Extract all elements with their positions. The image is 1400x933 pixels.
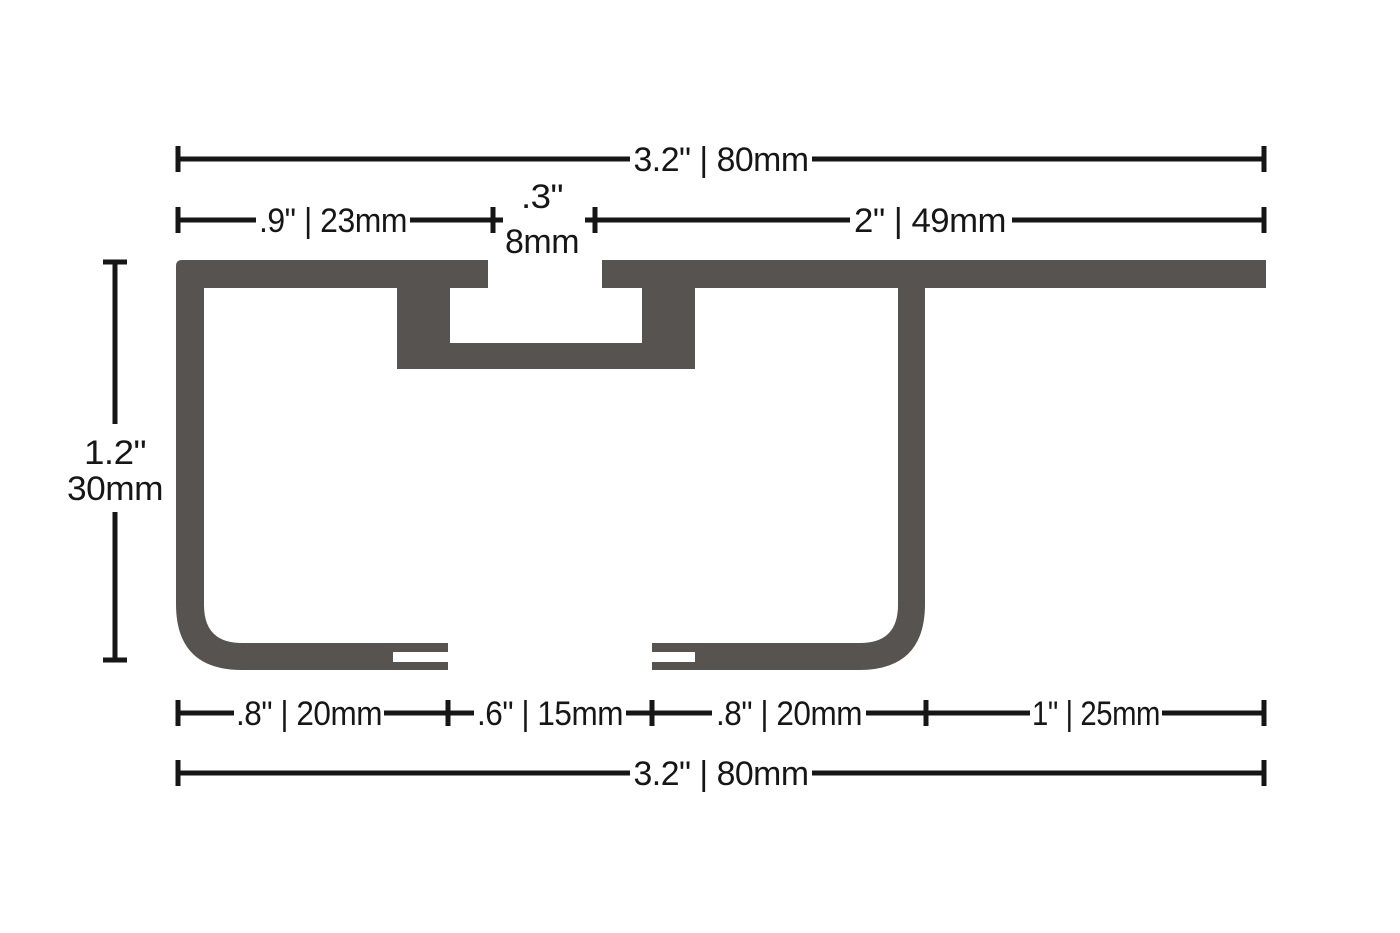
dim-top-left-label: .9" | 23mm xyxy=(259,202,407,240)
dim-bottom-total: 3.2" | 80mm xyxy=(178,755,1264,793)
dim-bottom-1-label: .8" | 20mm xyxy=(236,695,382,733)
dim-bottom-segments: .8" | 20mm .6" | 15mm .8" | 20mm 1" | 25… xyxy=(178,695,1264,733)
dim-bottom-2-label: .6" | 15mm xyxy=(477,695,623,733)
diagram-page: 3.2" | 80mm .9" | 23mm .3" 8mm 2" | 49mm… xyxy=(0,0,1400,933)
dim-slot-mm-label: 8mm xyxy=(505,223,579,261)
dim-top-total-label: 3.2" | 80mm xyxy=(634,141,809,179)
dim-height-mm-label: 30mm xyxy=(67,470,163,508)
dim-height: 1.2" 30mm xyxy=(67,262,163,660)
dim-height-inches-label: 1.2" xyxy=(84,434,146,472)
extrusion-profile-shape xyxy=(176,260,1266,670)
dim-top-total: 3.2" | 80mm xyxy=(178,141,1264,179)
dim-bottom-total-label: 3.2" | 80mm xyxy=(634,755,809,793)
dim-top-segments: .9" | 23mm .3" 8mm 2" | 49mm xyxy=(178,178,1264,261)
dim-slot-inches-label: .3" xyxy=(521,178,563,216)
dim-bottom-3-label: .8" | 20mm xyxy=(716,695,862,733)
dim-bottom-4-label: 1" | 25mm xyxy=(1032,695,1160,733)
cross-section-diagram: 3.2" | 80mm .9" | 23mm .3" 8mm 2" | 49mm… xyxy=(0,0,1400,933)
dim-top-right-label: 2" | 49mm xyxy=(854,202,1006,240)
